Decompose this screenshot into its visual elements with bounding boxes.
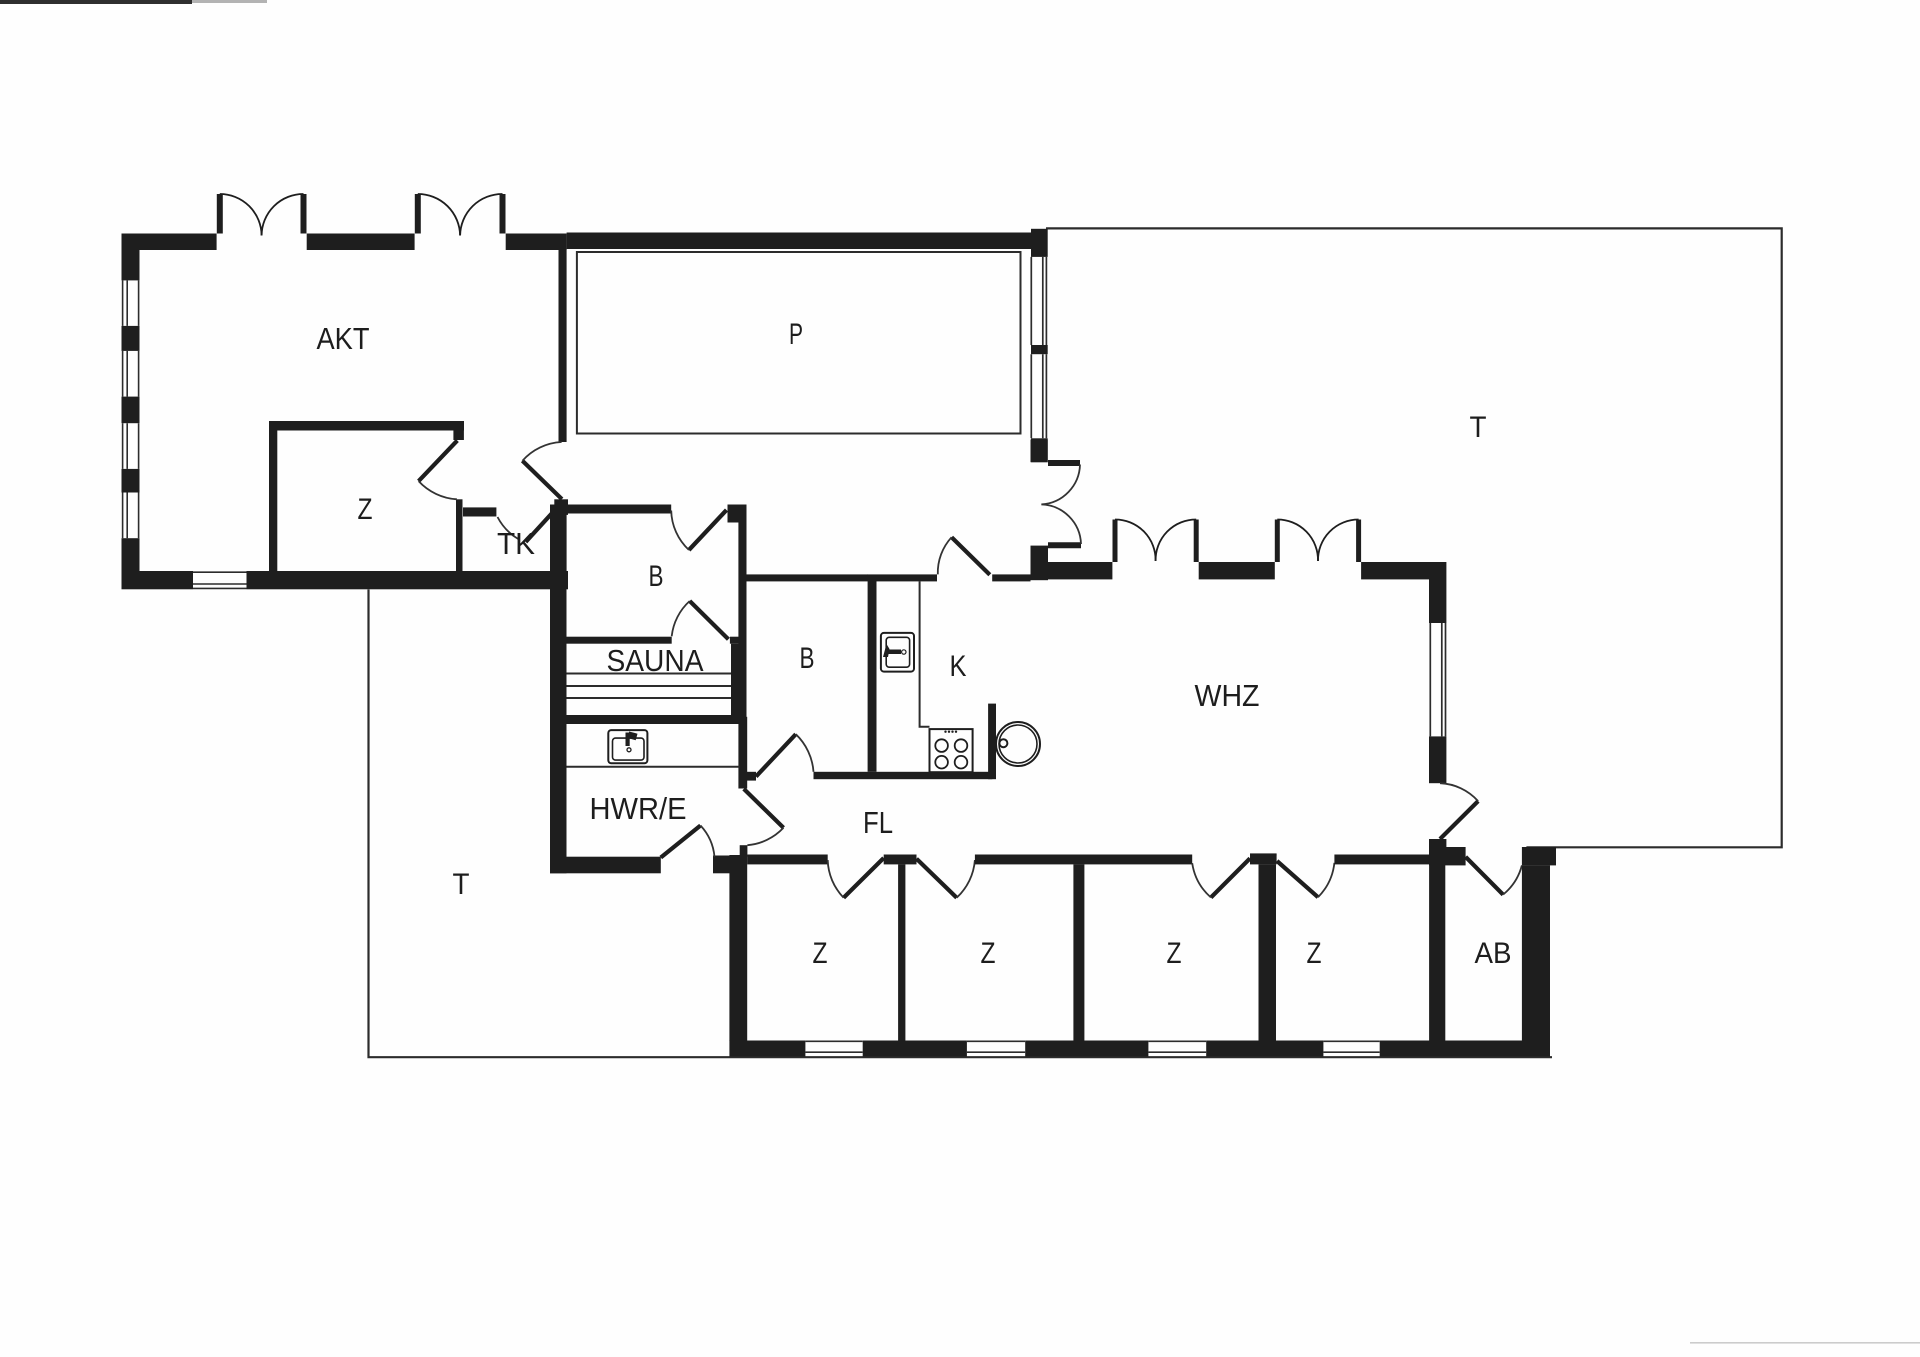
svg-text:Z: Z [1307,937,1322,970]
svg-text:Z: Z [813,937,828,970]
svg-text:Z: Z [1167,937,1182,970]
svg-text:Z: Z [981,937,996,970]
svg-text:B: B [649,560,664,593]
svg-text:AB: AB [1475,937,1512,970]
svg-text:Z: Z [358,493,373,526]
svg-text:T: T [453,868,470,901]
svg-text:FL: FL [863,805,893,840]
svg-text:B: B [800,642,815,675]
svg-text:WHZ: WHZ [1195,678,1260,713]
svg-text:TK: TK [497,526,535,561]
svg-text:K: K [950,650,967,683]
svg-text:HWR/E: HWR/E [590,791,687,826]
svg-text:P: P [789,318,803,351]
svg-text:SAUNA: SAUNA [607,643,704,678]
svg-text:AKT: AKT [317,321,370,356]
svg-text:T: T [1470,411,1487,444]
